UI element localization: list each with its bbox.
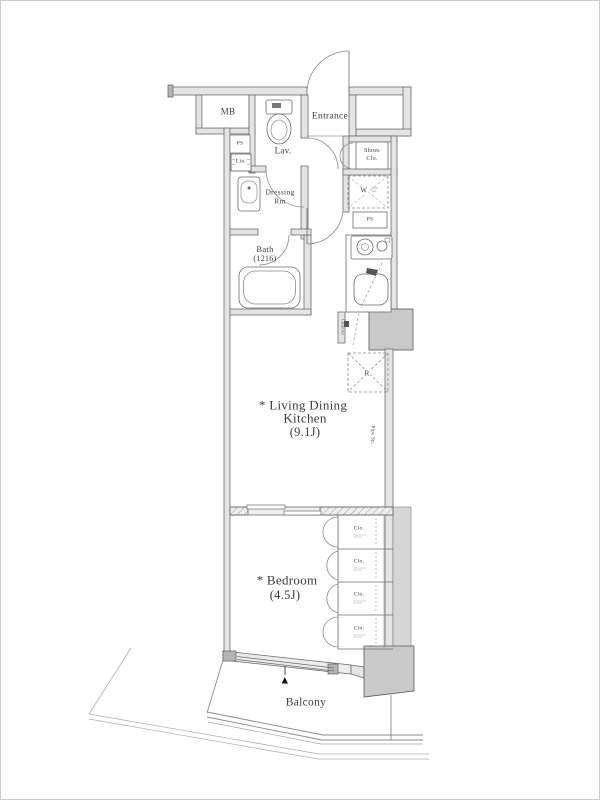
closet-door-arc-4 xyxy=(323,617,338,647)
room-label-bedroom-line2: (4.5J) xyxy=(270,589,301,602)
label-ps-right: PS xyxy=(367,217,374,223)
room-label-lav: Lav. xyxy=(275,147,292,156)
room-label-balcony: Balcony xyxy=(286,697,326,709)
ldk-door-arc xyxy=(307,208,343,244)
room-label-bedroom-line1: * Bedroom xyxy=(257,574,318,587)
bath-top-wall-a xyxy=(230,229,258,235)
shoes-bottom-wall xyxy=(343,169,397,175)
right-box-interior xyxy=(356,95,403,129)
label-closet-3: Clo. xyxy=(354,592,365,598)
counter-dash-2 xyxy=(353,313,359,345)
window-end-cap-right xyxy=(328,664,338,674)
site-diagonal-left xyxy=(89,648,131,714)
room-label-bath-line1: Bath xyxy=(256,245,273,254)
lav-bottom-jamb xyxy=(249,166,266,172)
site-boundary-2 xyxy=(89,719,429,759)
site-boundary-1 xyxy=(89,714,429,754)
label-closet-1: Clo. xyxy=(354,526,365,532)
kitchen-sink xyxy=(354,274,388,305)
room-label-shoes-line1: Shoes xyxy=(364,148,380,154)
unit-right-wall-top xyxy=(391,136,397,313)
room-label-shoes-line2: Clo. xyxy=(366,156,377,162)
entrance-door-arc xyxy=(307,51,349,93)
wall-cap-left xyxy=(168,85,173,97)
corridor-wall-right xyxy=(349,87,411,95)
partition-hatch-left xyxy=(230,507,248,515)
right-box-bottom-wall xyxy=(356,129,411,136)
room-label-entrance: Entrance xyxy=(312,112,348,122)
balcony-left-edge xyxy=(207,660,223,713)
room-label-ldk-line2: Kitchen xyxy=(283,412,326,425)
room-label-dressing-line1: Dressing xyxy=(265,188,294,196)
label-refrigerator: R xyxy=(363,369,370,377)
closet-door-arc-2 xyxy=(327,551,338,580)
unit-left-wall xyxy=(224,128,230,655)
entrance-right-wall xyxy=(349,95,356,136)
room-label-ldk-line3: (9.1J) xyxy=(290,426,321,439)
room-label-dressing-line2: Rm xyxy=(274,197,285,205)
label-counter-vertical: Counter xyxy=(340,319,345,336)
walls xyxy=(168,85,414,697)
unit-right-wall-bedroom xyxy=(385,507,393,651)
toilet-tank-lid xyxy=(272,103,281,108)
room-label-bath-line2: (1216) xyxy=(253,255,276,263)
vanity-faucet xyxy=(248,187,251,190)
structural-column-upper xyxy=(369,309,413,350)
label-linen: Lin. xyxy=(235,159,247,165)
direction-marker-icon: ▲ xyxy=(279,676,290,687)
label-closet-4: Clo. xyxy=(354,626,365,632)
label-washer: W xyxy=(360,188,369,195)
structural-column-lower xyxy=(364,646,414,697)
boundary-gray-strip xyxy=(393,507,411,651)
unit-right-wall-mid xyxy=(385,349,393,509)
closet-fine-print-rules xyxy=(353,535,366,637)
closet-door-arc-3 xyxy=(327,584,338,613)
shoes-top-wall xyxy=(349,136,397,142)
sliding-panel-1 xyxy=(247,505,285,509)
lav-door-arc xyxy=(307,138,338,169)
corridor-wall-left xyxy=(171,87,307,95)
room-label-mb: MB xyxy=(221,108,236,117)
bath-right-wall xyxy=(304,235,311,315)
sliding-panel-2 xyxy=(284,511,321,515)
floor-plan-page: MB Entrance Lav. Shoes Clo. Dressing Rm … xyxy=(0,0,600,800)
label-closet-2: Clo. xyxy=(354,559,365,565)
toilet-bowl xyxy=(267,114,291,144)
bath-bottom-wall xyxy=(230,309,311,315)
wall-joint-to-pillar xyxy=(351,665,364,678)
label-pipe-vertical: Pipe Sp. xyxy=(370,425,375,444)
closet-door-arc-1 xyxy=(323,517,338,547)
lav-right-wall-top xyxy=(301,95,308,138)
label-ps-left: PS xyxy=(237,141,244,147)
window-end-cap-left xyxy=(223,651,236,661)
bath-top-wall-b xyxy=(291,229,311,235)
partition-hatch-right xyxy=(320,507,393,515)
